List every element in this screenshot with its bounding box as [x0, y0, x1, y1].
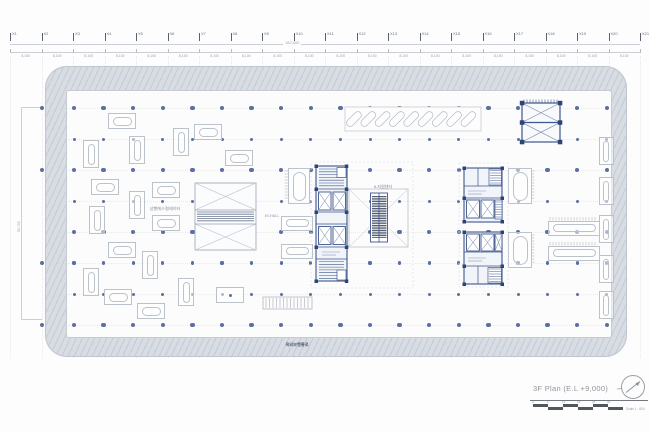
column-dot: [369, 138, 372, 141]
bay-dimension-value: 8,100: [136, 54, 168, 58]
column-dot: [161, 138, 164, 141]
column-dot: [397, 230, 401, 234]
column-dot: [190, 230, 194, 234]
table: [599, 215, 614, 243]
grid-label: X8: [233, 31, 238, 36]
column-dot: [161, 293, 164, 296]
column-dot: [40, 168, 44, 172]
grid-label: X19: [579, 31, 586, 36]
table: [288, 168, 310, 204]
column-dot: [486, 106, 490, 110]
column-dot: [428, 200, 431, 203]
floor-plan-sheet: 162,000X18,100X28,100X38,100X48,100X58,1…: [0, 0, 650, 433]
grid-tick: [483, 33, 484, 41]
column-dot: [40, 323, 44, 327]
grid-tick: [546, 33, 547, 41]
grid-tick: [10, 33, 11, 41]
grid-tick: [168, 33, 169, 41]
column-dot: [280, 261, 283, 264]
grid-label: X6: [170, 31, 175, 36]
column-dot: [545, 106, 549, 110]
table: [548, 246, 600, 261]
table: [152, 215, 180, 231]
grid-tick: [42, 33, 43, 41]
column-dot: [73, 138, 76, 141]
column-dot: [250, 138, 253, 141]
table: [137, 303, 165, 319]
table: [108, 242, 136, 258]
grid-tick: [105, 33, 106, 41]
grid-label: X3: [75, 31, 80, 36]
dim-tick: [514, 49, 515, 53]
column-dot: [309, 293, 312, 296]
table-top: [603, 141, 609, 162]
dim-tick: [42, 49, 43, 53]
table-top: [199, 128, 218, 137]
table-top: [94, 210, 101, 231]
column-dot: [398, 293, 401, 296]
grid-tick: [231, 33, 232, 41]
grid-label: X13: [390, 31, 397, 36]
table: [83, 140, 99, 168]
bay-dimension-value: 8,100: [231, 54, 263, 58]
table-top: [134, 195, 141, 216]
grid-tick: [357, 33, 358, 41]
dim-tick: [388, 49, 389, 53]
table-top: [142, 307, 161, 316]
column-dot: [428, 293, 431, 296]
grid-label: X10: [296, 31, 303, 36]
column-dot: [250, 261, 253, 264]
bay-dimension-value: 8,100: [42, 54, 74, 58]
bay-dimension-value: 8,100: [105, 54, 137, 58]
grid-tick: [262, 33, 263, 41]
bay-dimension-value: 8,100: [483, 54, 515, 58]
bay-dimension-value: 8,100: [609, 54, 641, 58]
table-top: [157, 186, 176, 195]
column-dot: [368, 261, 371, 264]
grid-line-vertical: [42, 56, 43, 358]
column-dot: [486, 230, 490, 234]
grid-line-vertical: [10, 56, 11, 358]
column-dot: [191, 261, 194, 264]
table: [599, 137, 614, 165]
scale-bar-tick-label: 0: [532, 400, 534, 404]
table-top: [513, 236, 528, 265]
column-dot: [546, 261, 549, 264]
column-dot: [132, 261, 135, 264]
drawing-title: 3F Plan (E.L +9,000): [533, 384, 608, 393]
grid-tick: [73, 33, 74, 41]
grid-tick: [640, 33, 641, 41]
left-dimension-value: 56,700: [17, 221, 21, 232]
grid-tick: [577, 33, 578, 41]
bay-dimension-value: 8,100: [514, 54, 546, 58]
column-dot: [546, 293, 549, 296]
grid-label: X2: [44, 31, 49, 36]
column-dot: [73, 293, 76, 296]
column-dot: [545, 323, 549, 327]
table-top: [109, 293, 128, 302]
grid-tick: [609, 33, 610, 41]
dim-tick: [640, 49, 641, 53]
column-dot: [428, 138, 431, 141]
column-dot: [220, 261, 223, 264]
column-dot: [250, 200, 253, 203]
table: [548, 221, 600, 236]
column-dot: [339, 200, 342, 203]
left-dim-connector: [21, 319, 42, 320]
column-dot: [190, 106, 194, 110]
grid-label: X5: [138, 31, 143, 36]
column-dot: [101, 168, 105, 172]
table: [599, 177, 614, 205]
dim-tick: [136, 49, 137, 53]
dim-tick: [325, 49, 326, 53]
column-dot: [338, 168, 342, 172]
table-top: [293, 172, 306, 201]
column-dot: [338, 106, 342, 110]
grid-label: X4: [107, 31, 112, 36]
grid-label: X11: [327, 31, 334, 36]
column-dot: [280, 293, 283, 296]
dim-tick: [262, 49, 263, 53]
table-top: [603, 295, 609, 316]
column-dot: [369, 200, 372, 203]
column-dot: [339, 261, 342, 264]
scale-bar-tick-label: 12: [562, 400, 565, 404]
scale-bar-tick-label: 30: [607, 400, 610, 404]
column-dot: [250, 293, 253, 296]
column-dot: [102, 200, 105, 203]
table: [142, 251, 158, 279]
scale-bar: 0612182430: [533, 404, 625, 412]
column-dot: [397, 323, 401, 327]
grid-label: X15: [453, 31, 460, 36]
table-top: [513, 172, 528, 201]
grid-label: X20: [611, 31, 618, 36]
grid-label: X12: [359, 31, 366, 36]
table: [194, 124, 222, 140]
column-dot: [576, 138, 579, 141]
table: [599, 291, 614, 319]
table: [129, 191, 145, 219]
column-dot: [457, 293, 460, 296]
column-dot: [428, 261, 431, 264]
bay-dimension-value: 8,100: [10, 54, 42, 58]
grid-tick: [451, 33, 452, 41]
scale-bar-tick-label: 6: [547, 400, 549, 404]
grid-tick: [325, 33, 326, 41]
bay-dimension-value: 8,100: [168, 54, 200, 58]
grid-tick: [420, 33, 421, 41]
column-dot: [280, 200, 283, 203]
column-dot: [338, 230, 342, 234]
table: [129, 136, 145, 164]
grid-label: X18: [548, 31, 555, 36]
table: [508, 232, 532, 268]
table-top: [603, 259, 609, 280]
grid-label: X9: [264, 31, 269, 36]
column-dot: [398, 138, 401, 141]
bay-dimension-value: 8,100: [451, 54, 483, 58]
column-dot: [487, 200, 490, 203]
left-dim-connector: [21, 107, 42, 108]
table: [216, 287, 244, 303]
table: [178, 278, 194, 306]
bay-dimension-value: 8,100: [420, 54, 452, 58]
column-dot: [309, 138, 312, 141]
grid-label: X21: [642, 31, 649, 36]
table: [83, 268, 99, 296]
table-top: [230, 154, 249, 163]
bay-dimension-value: 8,100: [357, 54, 389, 58]
table: [281, 216, 313, 231]
bay-dimension-value: 8,100: [73, 54, 105, 58]
total-dimension-line: [10, 44, 640, 45]
column-dot: [576, 261, 579, 264]
column-dot: [339, 293, 342, 296]
grid-tick: [514, 33, 515, 41]
scale-bar-segment: [563, 404, 578, 407]
scale-bar-segment: [593, 404, 608, 407]
table-top: [88, 144, 95, 165]
column-dot: [369, 293, 372, 296]
table-top: [147, 255, 154, 276]
column-dot: [249, 230, 253, 234]
scale-bar-segment: [533, 404, 548, 407]
column-dot: [517, 293, 520, 296]
table: [108, 113, 136, 129]
table-top: [113, 246, 132, 255]
column-dot: [338, 323, 342, 327]
column-dot: [487, 261, 490, 264]
table: [104, 289, 132, 305]
grid-label: X14: [422, 31, 429, 36]
column-dot: [397, 106, 401, 110]
dim-tick: [199, 49, 200, 53]
floor-plate: [66, 90, 612, 338]
dim-tick: [105, 49, 106, 53]
scale-bar-tick-label: 18: [577, 400, 580, 404]
column-dot: [339, 138, 342, 141]
table-top: [157, 219, 176, 228]
table-top: [183, 282, 190, 303]
table-top: [286, 247, 309, 255]
column-dot: [40, 261, 44, 265]
bay-dimension-value: 8,100: [577, 54, 609, 58]
table: [508, 168, 532, 204]
column-dot: [161, 200, 164, 203]
grid-tick: [388, 33, 389, 41]
table-top: [134, 140, 141, 161]
bay-dimension-value: 8,100: [199, 54, 231, 58]
column-dot: [40, 106, 44, 110]
table-top: [96, 183, 115, 192]
column-dot: [487, 138, 490, 141]
dim-tick: [73, 49, 74, 53]
table-top: [553, 224, 596, 232]
dim-tick: [357, 49, 358, 53]
table-top: [113, 117, 132, 126]
table: [91, 179, 119, 195]
dim-tick: [546, 49, 547, 53]
table-top: [178, 132, 185, 153]
grid-label: X7: [201, 31, 206, 36]
scale-bar-segment: [578, 407, 593, 410]
column-dot: [457, 200, 460, 203]
column-dot: [102, 261, 105, 264]
column-dot: [546, 200, 549, 203]
dim-tick: [483, 49, 484, 53]
scale-bar-segment: [548, 407, 563, 410]
grid-tick: [199, 33, 200, 41]
north-arrow-circle: [621, 375, 645, 399]
bay-dimension-value: 8,100: [262, 54, 294, 58]
column-dot: [517, 138, 520, 141]
table: [599, 255, 614, 283]
column-dot: [546, 138, 549, 141]
table-dot: [229, 294, 232, 297]
table: [225, 150, 253, 166]
column-dot: [397, 168, 401, 172]
scale-bar-segment: [608, 407, 623, 410]
column-dot: [249, 323, 253, 327]
left-dimension-line: [21, 107, 22, 320]
grid-label: X16: [485, 31, 492, 36]
bay-dimension-value: 8,100: [325, 54, 357, 58]
table-top: [553, 249, 596, 257]
table: [281, 244, 313, 259]
column-dot: [398, 261, 401, 264]
grid-tick: [294, 33, 295, 41]
grid-line-vertical: [640, 56, 641, 358]
column-dot: [101, 106, 105, 110]
dim-tick: [451, 49, 452, 53]
column-dot: [190, 168, 194, 172]
table-top: [603, 181, 609, 202]
column-dot: [486, 323, 490, 327]
scale-text: Scale 1 : 600: [626, 407, 645, 411]
table-top: [88, 272, 95, 293]
column-dot: [487, 293, 490, 296]
dim-tick: [294, 49, 295, 53]
total-dimension-value: 162,000: [283, 40, 301, 45]
column-dot: [191, 200, 194, 203]
column-dot: [72, 261, 75, 264]
column-dot: [280, 138, 283, 141]
column-dot: [398, 200, 401, 203]
dim-tick: [420, 49, 421, 53]
dim-tick: [609, 49, 610, 53]
column-dot: [221, 200, 224, 203]
grid-tick: [136, 33, 137, 41]
grid-label: X1: [12, 31, 17, 36]
column-dot: [249, 106, 253, 110]
dim-tick: [231, 49, 232, 53]
table: [152, 182, 180, 198]
scale-bar-tick-label: 24: [592, 400, 595, 404]
column-dot: [101, 323, 105, 327]
table-top: [603, 219, 609, 240]
column-dot: [486, 168, 490, 172]
bay-dimension-value: 8,100: [388, 54, 420, 58]
column-dot: [190, 323, 194, 327]
column-dot: [576, 200, 579, 203]
dim-tick: [168, 49, 169, 53]
dim-tick: [577, 49, 578, 53]
grid-label: X17: [516, 31, 523, 36]
column-dot: [73, 200, 76, 203]
bay-dimension-value: 8,100: [294, 54, 326, 58]
column-dot: [545, 168, 549, 172]
table: [173, 128, 189, 156]
column-dot: [132, 293, 135, 296]
column-dot: [576, 293, 579, 296]
dim-tick: [10, 49, 11, 53]
column-dot: [249, 168, 253, 172]
table-top: [286, 219, 309, 227]
column-dot: [102, 138, 105, 141]
bay-dimension-value: 8,100: [546, 54, 578, 58]
column-dot: [457, 138, 460, 141]
table: [89, 206, 105, 234]
